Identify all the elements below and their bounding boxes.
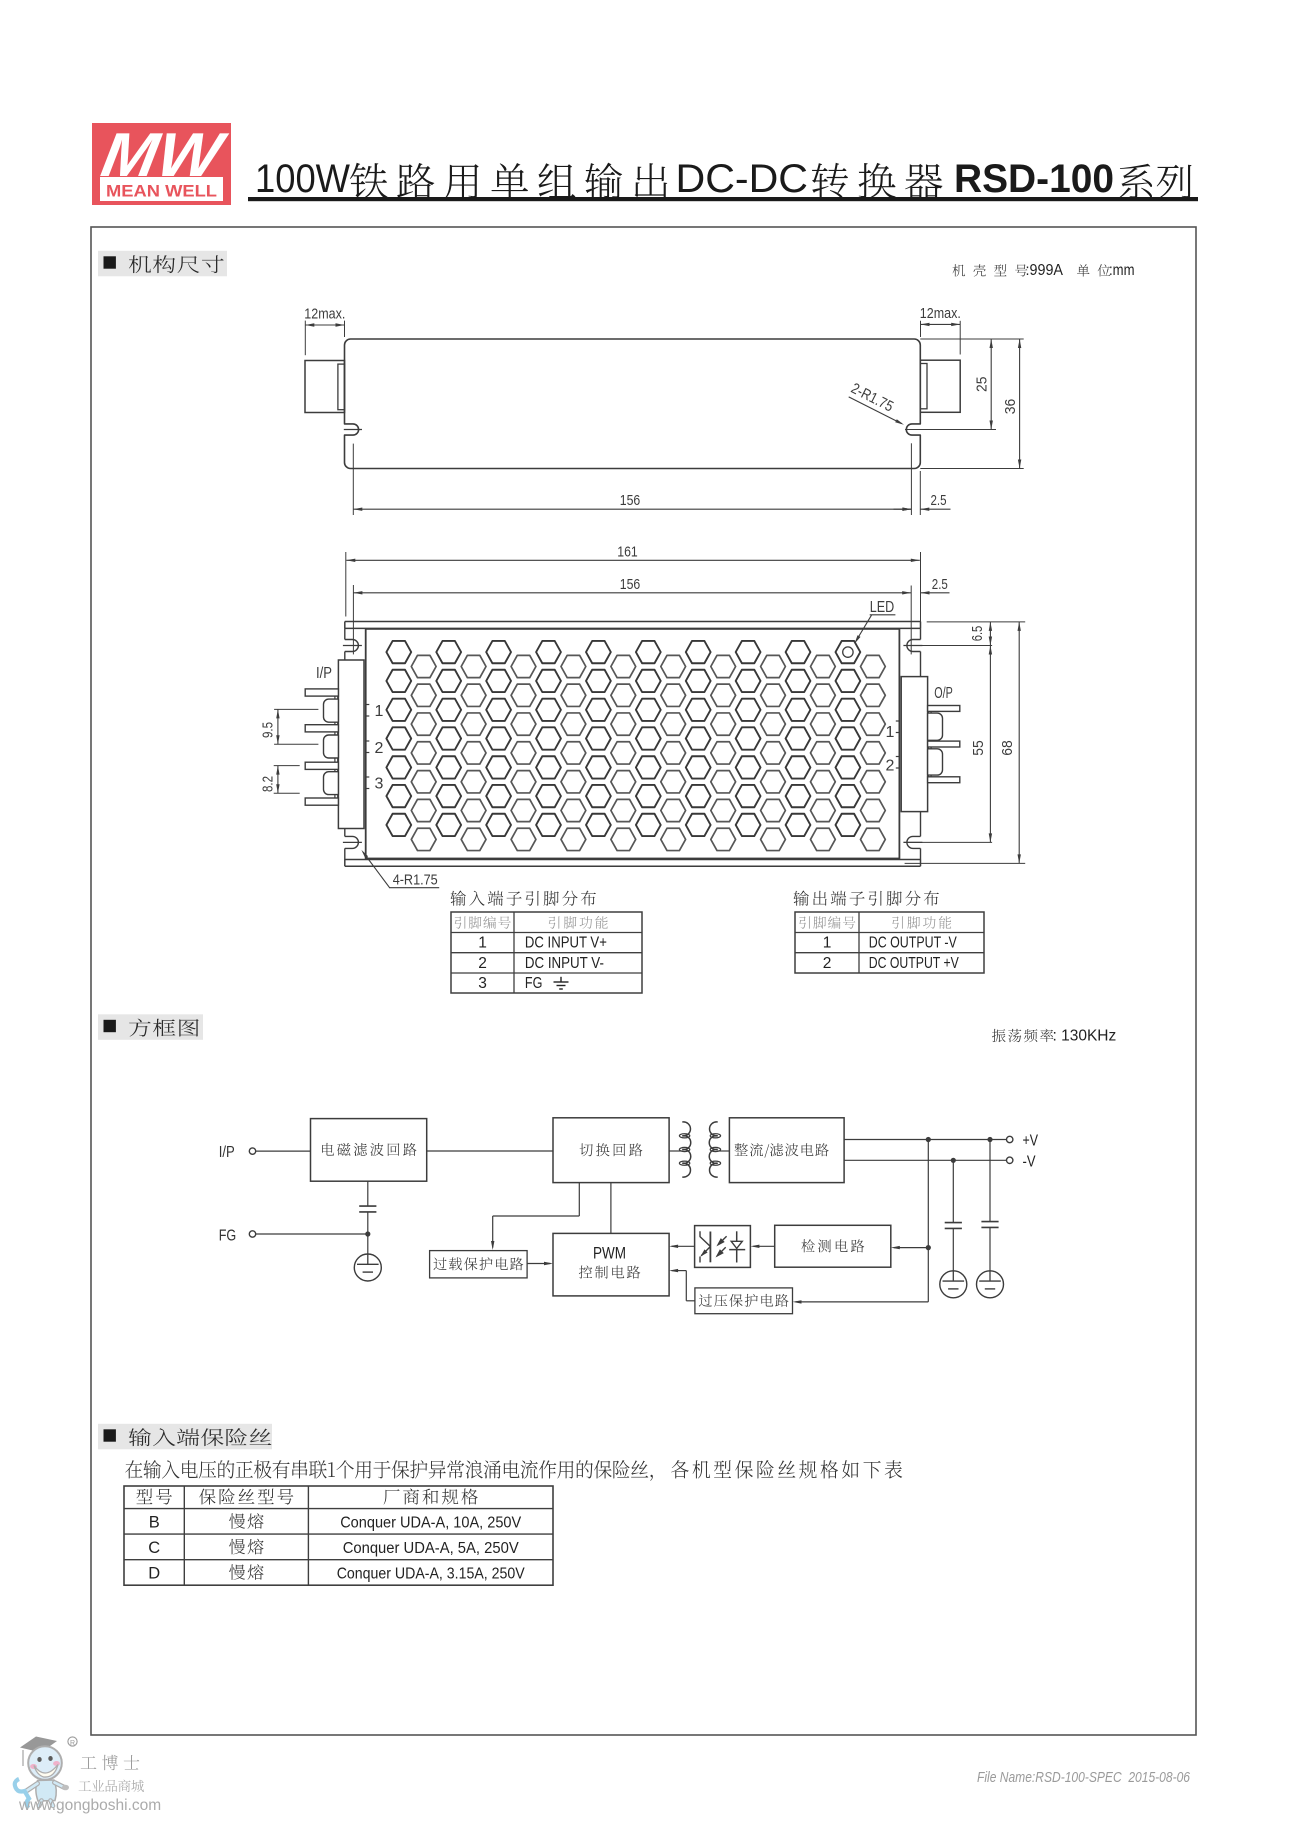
svg-text:+V: +V bbox=[1023, 1133, 1039, 1150]
svg-text:25: 25 bbox=[974, 377, 991, 393]
svg-text:4-R1.75: 4-R1.75 bbox=[393, 871, 438, 888]
svg-text:I/P: I/P bbox=[219, 1144, 235, 1161]
svg-text:100W: 100W bbox=[255, 157, 350, 201]
svg-text:8.2: 8.2 bbox=[260, 776, 277, 792]
svg-text:-V: -V bbox=[1023, 1153, 1036, 1170]
svg-text:12max.: 12max. bbox=[304, 306, 345, 323]
svg-text:DC-DC: DC-DC bbox=[676, 157, 809, 201]
svg-text:www.gongboshi.com: www.gongboshi.com bbox=[18, 1797, 161, 1814]
svg-text:FG: FG bbox=[219, 1228, 237, 1245]
svg-text:36: 36 bbox=[1002, 399, 1019, 415]
svg-text:I/P: I/P bbox=[316, 665, 332, 682]
svg-text:DC INPUT V-: DC INPUT V- bbox=[525, 955, 604, 972]
svg-text:2: 2 bbox=[886, 758, 895, 775]
svg-text:1: 1 bbox=[886, 724, 895, 741]
svg-text:2.5: 2.5 bbox=[931, 492, 947, 509]
svg-text::mm: :mm bbox=[1109, 262, 1135, 279]
svg-text:Conquer UDA-A, 5A, 250V: Conquer UDA-A, 5A, 250V bbox=[343, 1540, 520, 1557]
svg-text:D: D bbox=[148, 1565, 160, 1583]
svg-text:55: 55 bbox=[970, 740, 987, 756]
svg-text:DC OUTPUT +V: DC OUTPUT +V bbox=[869, 955, 960, 972]
svg-text:File Name:RSD-100-SPEC 2015-0: File Name:RSD-100-SPEC 2015-08-06 bbox=[977, 1770, 1191, 1786]
svg-text:FG: FG bbox=[525, 975, 543, 992]
svg-text:1: 1 bbox=[823, 935, 832, 952]
svg-text:6.5: 6.5 bbox=[970, 626, 986, 642]
svg-text:2.5: 2.5 bbox=[932, 576, 948, 593]
svg-text:Conquer UDA-A, 10A, 250V: Conquer UDA-A, 10A, 250V bbox=[340, 1515, 522, 1532]
svg-text:2: 2 bbox=[478, 955, 487, 972]
svg-text:DC OUTPUT -V: DC OUTPUT -V bbox=[869, 935, 958, 952]
svg-text:R: R bbox=[70, 1740, 75, 1747]
svg-text:PWM: PWM bbox=[593, 1244, 626, 1263]
svg-text:LED: LED bbox=[870, 599, 895, 616]
svg-text:MEAN WELL: MEAN WELL bbox=[106, 182, 217, 201]
svg-text:12max.: 12max. bbox=[920, 305, 961, 322]
svg-text:68: 68 bbox=[999, 740, 1016, 756]
svg-text:9.5: 9.5 bbox=[260, 722, 277, 738]
svg-text:: 130KHz: : 130KHz bbox=[1053, 1028, 1117, 1045]
svg-text:C: C bbox=[148, 1539, 160, 1557]
svg-text:2: 2 bbox=[375, 740, 384, 757]
svg-text:1: 1 bbox=[478, 935, 487, 952]
svg-text:DC INPUT V+: DC INPUT V+ bbox=[525, 935, 607, 952]
svg-text:2: 2 bbox=[823, 955, 832, 972]
svg-text:3: 3 bbox=[478, 975, 487, 992]
svg-text:B: B bbox=[149, 1514, 160, 1532]
svg-text:3: 3 bbox=[375, 776, 384, 793]
svg-text:RSD-100: RSD-100 bbox=[954, 157, 1114, 201]
svg-text:O/P: O/P bbox=[934, 685, 953, 702]
svg-text::999A: :999A bbox=[1026, 262, 1064, 279]
svg-text:156: 156 bbox=[620, 492, 641, 509]
svg-text:1: 1 bbox=[375, 703, 384, 720]
svg-text:156: 156 bbox=[620, 576, 641, 593]
svg-text:Conquer UDA-A, 3.15A, 250V: Conquer UDA-A, 3.15A, 250V bbox=[337, 1566, 526, 1583]
svg-text:161: 161 bbox=[617, 544, 638, 561]
